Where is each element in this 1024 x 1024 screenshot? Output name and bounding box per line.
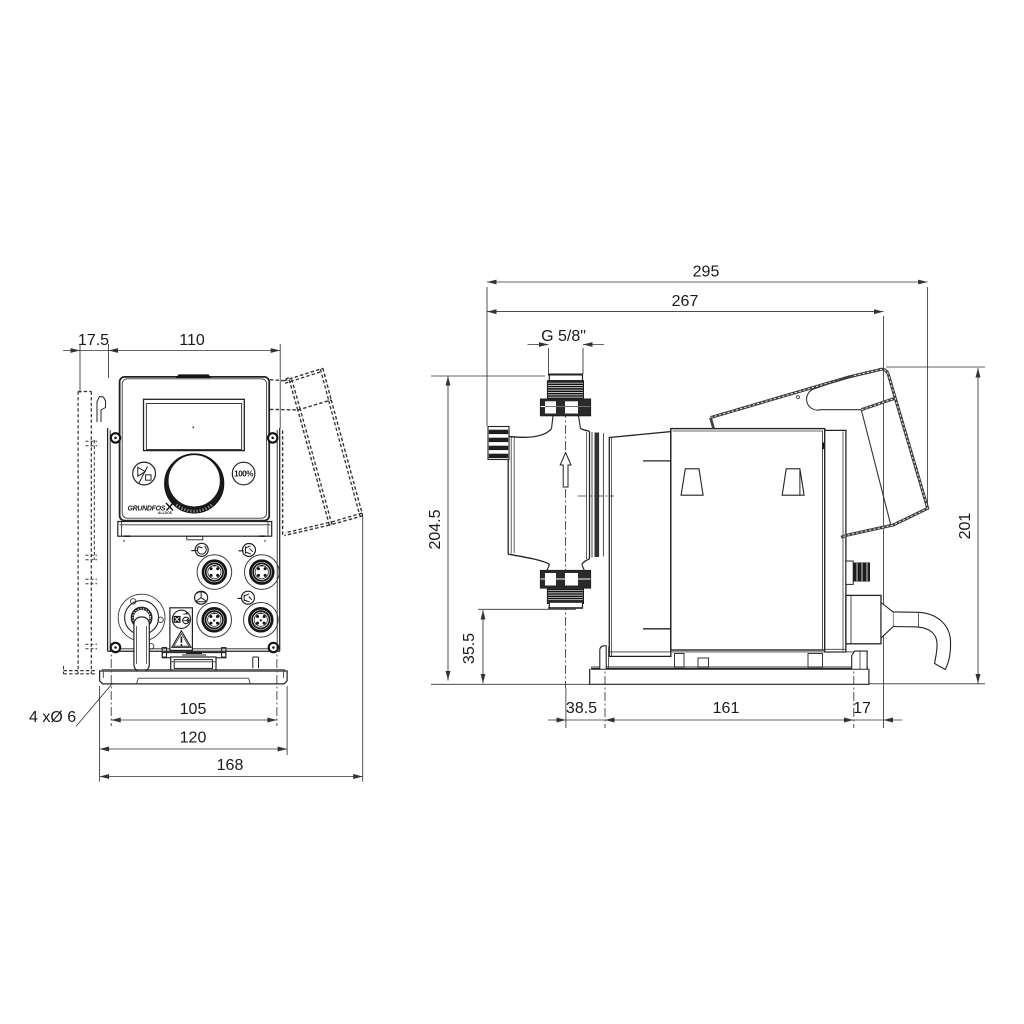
svg-text:35.5: 35.5 — [461, 633, 478, 664]
svg-text:105: 105 — [180, 701, 207, 718]
svg-text:120: 120 — [180, 730, 207, 747]
svg-text:201: 201 — [957, 513, 974, 540]
svg-text:295: 295 — [693, 264, 720, 281]
svg-text:204.5: 204.5 — [427, 509, 444, 549]
svg-text:G 5/8": G 5/8" — [541, 328, 586, 345]
svg-text:17.5: 17.5 — [78, 332, 109, 349]
svg-text:267: 267 — [672, 293, 699, 310]
svg-text:110: 110 — [179, 332, 205, 349]
svg-text:161: 161 — [713, 700, 740, 717]
svg-text:ALLDOS: ALLDOS — [158, 511, 173, 515]
svg-text:100%: 100% — [234, 469, 253, 478]
svg-text:17: 17 — [853, 700, 871, 717]
svg-text:4 xØ 6: 4 xØ 6 — [29, 709, 76, 726]
svg-text:168: 168 — [217, 757, 244, 774]
svg-text:38.5: 38.5 — [566, 700, 597, 717]
